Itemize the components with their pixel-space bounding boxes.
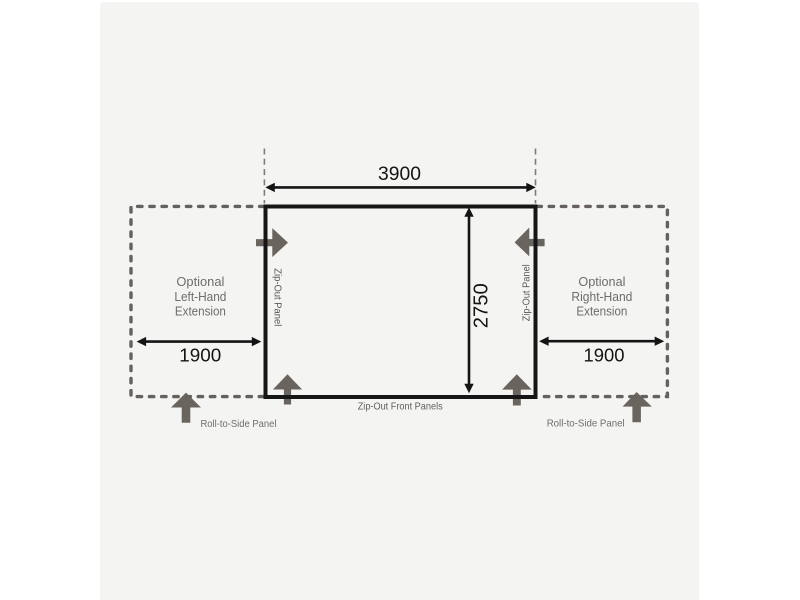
svg-text:Left-Hand: Left-Hand [174, 289, 226, 304]
svg-text:Extension: Extension [175, 304, 226, 319]
svg-text:Optional: Optional [578, 274, 625, 289]
svg-text:Zip-Out Panel: Zip-Out Panel [522, 264, 533, 321]
svg-text:Zip-Out Front Panels: Zip-Out Front Panels [358, 402, 443, 413]
svg-text:1900: 1900 [584, 344, 625, 365]
svg-text:3900: 3900 [378, 163, 421, 185]
svg-text:Extension: Extension [576, 304, 627, 319]
svg-text:Optional: Optional [176, 274, 224, 289]
svg-text:1900: 1900 [179, 344, 221, 365]
svg-text:2750: 2750 [471, 283, 493, 328]
svg-text:Roll-to-Side Panel: Roll-to-Side Panel [201, 419, 277, 430]
svg-text:Roll-to-Side Panel: Roll-to-Side Panel [547, 418, 625, 429]
svg-text:Zip-Out Panel: Zip-Out Panel [271, 268, 282, 326]
svg-text:Right-Hand: Right-Hand [571, 289, 632, 304]
